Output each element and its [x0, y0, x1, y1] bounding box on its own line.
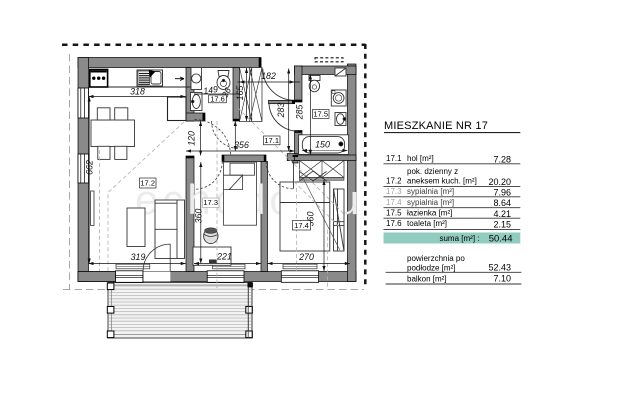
- svg-text:MIESZKANIE NR 17: MIESZKANIE NR 17: [384, 120, 488, 132]
- svg-text:17.1: 17.1: [386, 154, 402, 163]
- svg-text:sypialnia [m²]: sypialnia [m²]: [407, 187, 454, 196]
- svg-text:662: 662: [85, 160, 95, 175]
- svg-text:17.1: 17.1: [264, 136, 279, 145]
- svg-text:17.6: 17.6: [386, 219, 402, 228]
- svg-text:120: 120: [186, 131, 196, 146]
- svg-text:17.6: 17.6: [210, 94, 225, 103]
- svg-text:7.96: 7.96: [493, 187, 511, 197]
- svg-text:52.43: 52.43: [488, 263, 511, 273]
- svg-text:270: 270: [298, 252, 314, 262]
- svg-text:17.5: 17.5: [386, 209, 402, 218]
- svg-text:17.2: 17.2: [140, 179, 155, 188]
- svg-text:17.4: 17.4: [386, 198, 402, 207]
- svg-text:17.3: 17.3: [203, 198, 218, 207]
- svg-text:hol [m²]: hol [m²]: [407, 154, 434, 163]
- svg-text:pok. dzienny z: pok. dzienny z: [407, 167, 458, 176]
- svg-text:17.4: 17.4: [294, 221, 309, 230]
- svg-text:17.5: 17.5: [313, 109, 328, 118]
- svg-text:7.10: 7.10: [493, 274, 511, 284]
- svg-text:150: 150: [315, 140, 330, 150]
- svg-text:4.21: 4.21: [493, 209, 511, 219]
- svg-text:balkon [m²]: balkon [m²]: [407, 274, 447, 283]
- svg-text:łazienka [m²]: łazienka [m²]: [407, 209, 452, 218]
- svg-text:toaleta [m²]: toaleta [m²]: [407, 219, 447, 228]
- svg-text:221: 221: [216, 252, 232, 262]
- svg-text:360: 360: [193, 209, 203, 224]
- svg-text:sypialnia [m²]: sypialnia [m²]: [407, 198, 454, 207]
- svg-text:suma [m²] :: suma [m²] :: [439, 234, 479, 243]
- svg-text:285: 285: [295, 105, 305, 121]
- svg-text:8.64: 8.64: [493, 198, 511, 208]
- svg-text:50.44: 50.44: [489, 234, 513, 245]
- svg-text:182: 182: [261, 71, 276, 81]
- svg-text:165: 165: [235, 86, 245, 101]
- svg-text:20.20: 20.20: [488, 177, 511, 187]
- svg-text:17.2: 17.2: [386, 177, 402, 186]
- svg-text:aneksem kuch. [m²]: aneksem kuch. [m²]: [407, 177, 477, 186]
- svg-text:podłodze [m²]: podłodze [m²]: [407, 263, 455, 272]
- svg-text:17.3: 17.3: [386, 187, 402, 196]
- svg-text:2.15: 2.15: [493, 219, 511, 229]
- svg-text:319: 319: [131, 252, 146, 262]
- svg-text:283: 283: [276, 103, 286, 119]
- svg-text:7.28: 7.28: [493, 154, 511, 164]
- svg-text:318: 318: [130, 87, 145, 97]
- svg-text:356: 356: [234, 140, 249, 150]
- svg-text:powierzchnia po: powierzchnia po: [407, 254, 465, 263]
